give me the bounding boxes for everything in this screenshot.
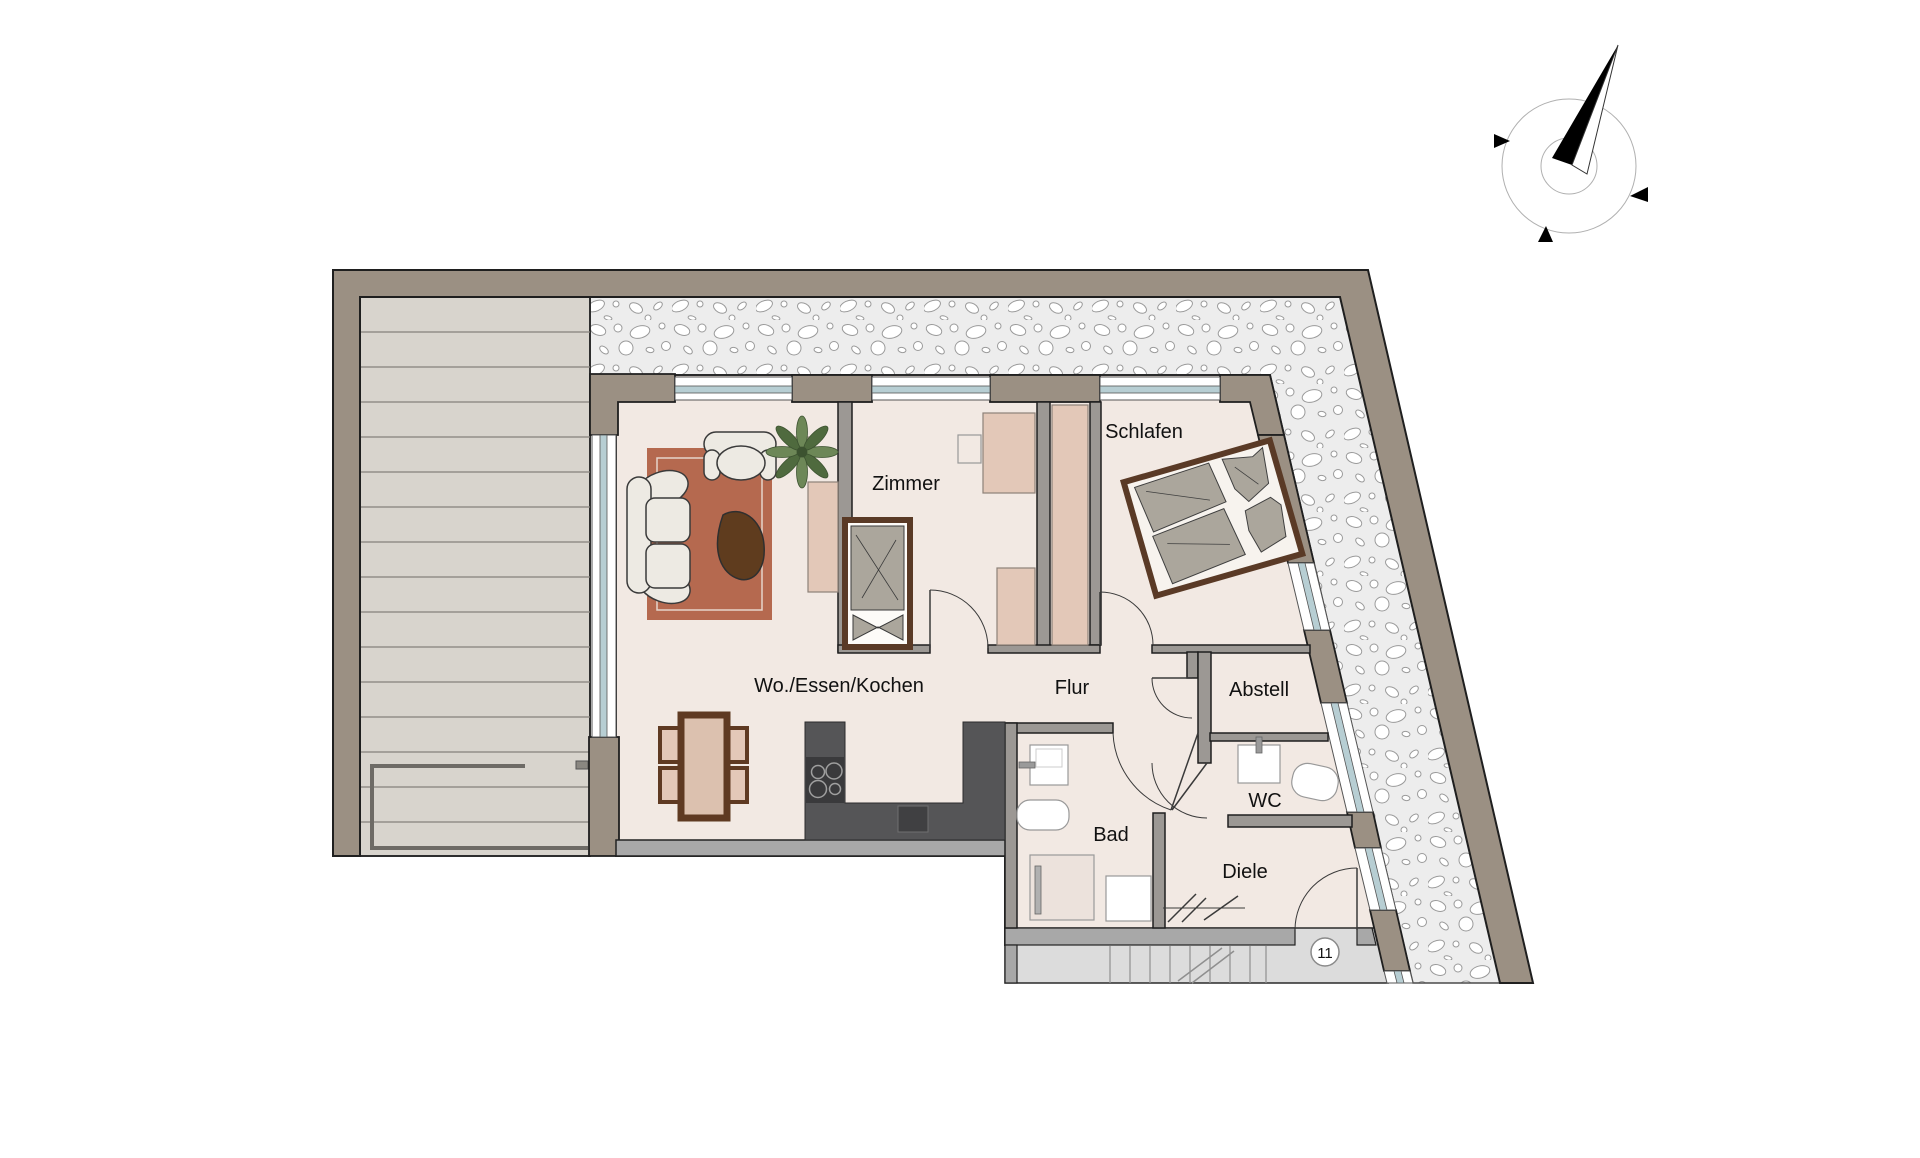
compass-icon: [1494, 45, 1648, 242]
kitchen-sink: [898, 806, 928, 832]
armchair: [704, 432, 776, 480]
washing-machine: [1106, 876, 1151, 921]
label-wohnen: Wo./Essen/Kochen: [754, 675, 924, 697]
unit-number: 11: [1317, 945, 1333, 962]
label-abstell: Abstell: [1229, 679, 1289, 701]
plant: [766, 416, 838, 488]
floor-plan-page: 11: [0, 0, 1920, 1158]
sofa: [627, 464, 695, 610]
wardrobe-zimmer: [997, 568, 1035, 645]
label-diele: Diele: [1222, 861, 1268, 883]
sideboard: [808, 482, 838, 592]
label-zimmer: Zimmer: [872, 473, 940, 495]
stairwell: 11: [1005, 928, 1388, 983]
label-schlafen: Schlafen: [1105, 421, 1183, 443]
desk-chair: [958, 435, 981, 463]
terrace: [360, 297, 590, 856]
label-wc: WC: [1248, 790, 1281, 812]
toilet-bad: [1017, 800, 1069, 830]
wardrobe-flur: [1052, 405, 1088, 645]
single-bed: [845, 520, 910, 647]
south-wall: [616, 840, 1007, 856]
dining-table: [660, 715, 747, 818]
desk: [983, 413, 1035, 493]
label-flur: Flur: [1055, 677, 1090, 699]
label-bad: Bad: [1093, 824, 1129, 846]
radiator: [1035, 866, 1041, 914]
floor-plan-drawing: 11: [0, 0, 1920, 1158]
